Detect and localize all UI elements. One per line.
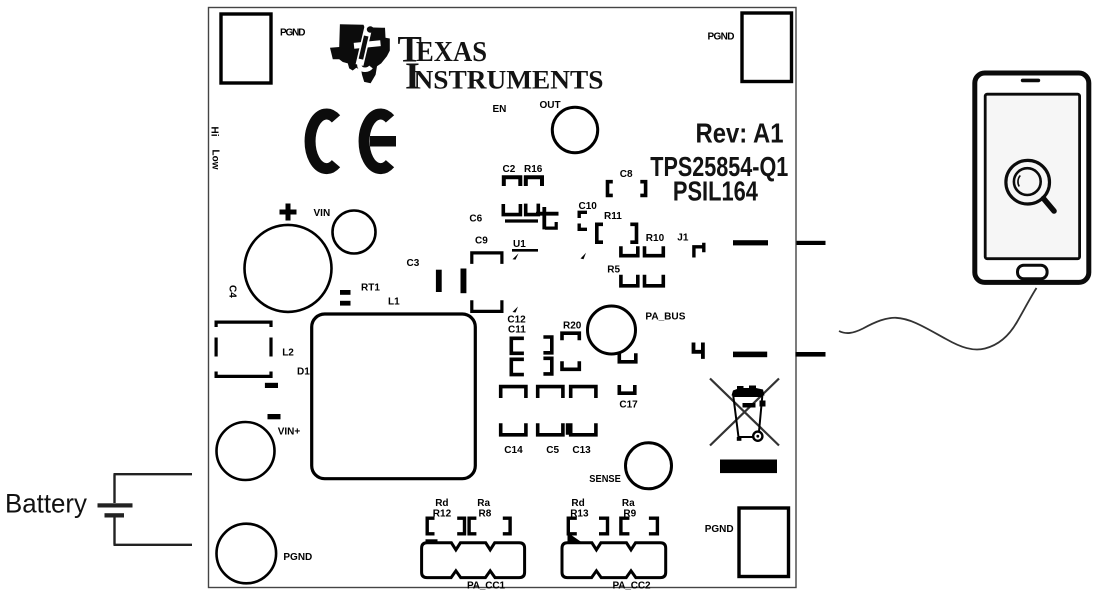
- svg-text:C4: C4: [227, 285, 238, 298]
- svg-text:C6: C6: [469, 213, 482, 224]
- svg-text:Battery: Battery: [5, 489, 87, 519]
- svg-text:Rev: A1: Rev: A1: [696, 118, 784, 149]
- svg-text:D1: D1: [297, 367, 310, 378]
- svg-text:L1: L1: [388, 297, 400, 308]
- svg-text:PGND: PGND: [705, 524, 734, 535]
- svg-text:PSIL164: PSIL164: [673, 176, 759, 207]
- svg-text:EN: EN: [493, 104, 507, 115]
- svg-text:C3: C3: [407, 258, 420, 269]
- svg-text:C11: C11: [508, 324, 526, 335]
- svg-text:C9: C9: [475, 235, 488, 246]
- svg-text:SENSE: SENSE: [589, 474, 621, 485]
- svg-text:C13: C13: [572, 445, 591, 456]
- svg-text:C14: C14: [504, 445, 523, 456]
- svg-text:RT1: RT1: [361, 282, 380, 293]
- svg-text:C10: C10: [579, 201, 598, 212]
- svg-text:PGND: PGND: [283, 552, 312, 563]
- svg-text:R16: R16: [524, 164, 543, 175]
- svg-text:L2: L2: [282, 347, 294, 358]
- svg-text:U1: U1: [513, 239, 526, 250]
- svg-text:R8: R8: [479, 508, 492, 519]
- svg-text:Hi: Hi: [209, 127, 220, 137]
- svg-text:PA_CC2: PA_CC2: [613, 580, 651, 591]
- svg-text:R5: R5: [607, 264, 620, 275]
- svg-text:PGND: PGND: [708, 31, 735, 42]
- svg-text:VIN+: VIN+: [278, 426, 301, 437]
- svg-text:OUT: OUT: [540, 100, 561, 111]
- svg-text:R12: R12: [433, 508, 452, 519]
- svg-text:R20: R20: [563, 321, 582, 332]
- svg-text:VIN: VIN: [314, 208, 331, 219]
- svg-text:C17: C17: [619, 400, 638, 411]
- svg-text:PA_CC1: PA_CC1: [467, 580, 505, 591]
- svg-text:C2: C2: [503, 164, 516, 175]
- svg-text:PA_BUS: PA_BUS: [645, 312, 685, 323]
- svg-text:Low: Low: [210, 150, 221, 170]
- svg-text:NSTRUMENTS: NSTRUMENTS: [414, 65, 604, 95]
- svg-text:PGND: PGND: [280, 28, 306, 39]
- svg-text:J1: J1: [677, 233, 689, 244]
- svg-text:R10: R10: [646, 233, 665, 244]
- svg-text:C5: C5: [546, 445, 559, 456]
- svg-text:C8: C8: [620, 169, 633, 180]
- svg-text:R11: R11: [604, 211, 622, 222]
- svg-text:EXAS: EXAS: [416, 37, 487, 68]
